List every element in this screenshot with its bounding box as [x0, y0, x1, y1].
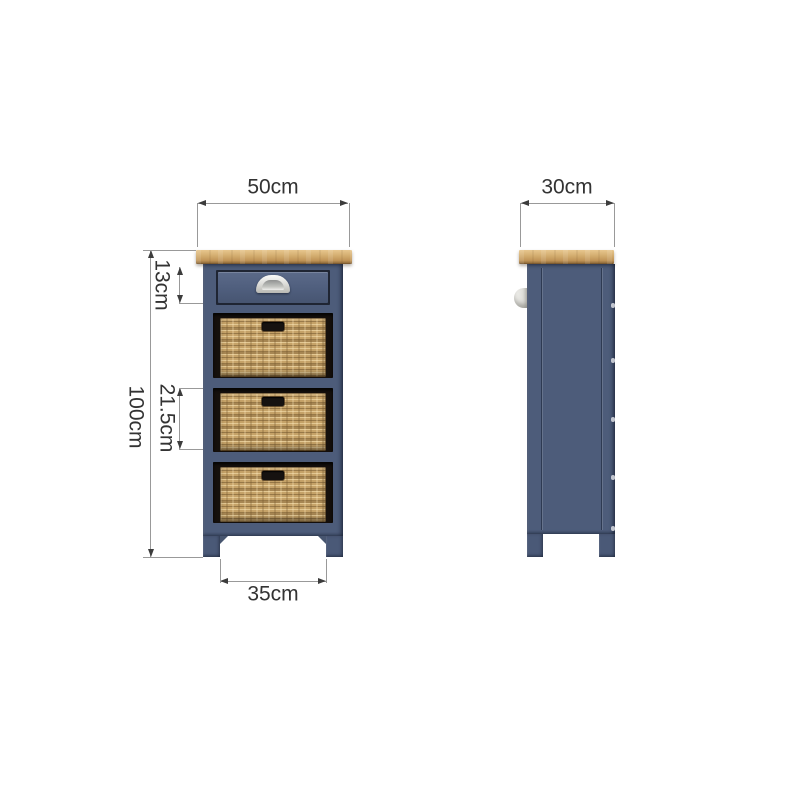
side-edge-highlight: [611, 526, 615, 531]
dimension-leg-span-label: 35cm: [247, 584, 298, 605]
basket-handle-cutout-1: [262, 322, 284, 331]
side-edge-highlight: [611, 358, 615, 363]
dimension-total-height-label: 100cm: [126, 385, 147, 448]
arrowhead-left: [198, 200, 206, 206]
side-panel-groove-front-highlight: [542, 268, 543, 530]
drawer-cup-handle-inner: [262, 280, 284, 290]
front-oak-top: [196, 250, 352, 264]
side-edge-highlight: [611, 475, 615, 480]
front-leg-left: [203, 536, 220, 557]
arrowhead-down: [177, 295, 183, 303]
arrowhead-up: [148, 250, 154, 258]
arrowhead-right: [340, 200, 348, 206]
dimension-line: [179, 388, 180, 449]
arrowhead-up: [177, 267, 183, 275]
arrowhead-right: [318, 578, 326, 584]
dimension-basket-height-label: 21.5cm: [157, 384, 178, 453]
front-drawer-recess: [216, 270, 330, 305]
side-oak-grain: [519, 250, 614, 264]
front-leg-right: [326, 536, 343, 557]
dimension-front-width-label: 50cm: [247, 177, 298, 198]
arrowhead-down: [148, 549, 154, 557]
basket-handle-cutout-2: [262, 397, 284, 406]
dimension-line: [521, 203, 614, 204]
extension-line: [520, 203, 521, 247]
basket-handle-cutout-3: [262, 471, 284, 480]
side-edge-highlight: [611, 303, 615, 308]
extension-line: [197, 203, 198, 247]
arrowhead-up: [177, 388, 183, 396]
front-oak-grain: [196, 250, 352, 264]
arrowhead-left: [521, 200, 529, 206]
dimension-line: [198, 203, 348, 204]
diagram-canvas: 50cm 30cm 100cm 13cm 21.5cm: [0, 0, 800, 800]
side-leg-back: [599, 534, 615, 557]
dimension-drawer-height-label: 13cm: [152, 259, 173, 310]
side-drawer-handle: [514, 288, 527, 308]
side-leg-front: [527, 534, 543, 557]
front-apron-chamfer-right: [318, 536, 326, 544]
extension-line: [179, 388, 203, 389]
front-apron-chamfer-left: [220, 536, 228, 544]
basket-opening-1: [213, 313, 333, 378]
side-edge-highlight: [611, 417, 615, 422]
extension-line: [614, 203, 615, 247]
extension-line: [179, 449, 203, 450]
wicker-basket-3: [220, 467, 326, 522]
side-panel-groove-back-highlight: [602, 268, 603, 530]
extension-line: [220, 559, 221, 583]
extension-line: [143, 250, 196, 251]
arrowhead-left: [220, 578, 228, 584]
extension-line: [326, 559, 327, 583]
wicker-basket-1: [220, 318, 326, 377]
dimension-line: [220, 581, 326, 582]
basket-opening-2: [213, 388, 333, 452]
basket-opening-3: [213, 462, 333, 523]
wicker-basket-2: [220, 393, 326, 451]
arrowhead-down: [177, 441, 183, 449]
extension-line: [143, 557, 203, 558]
dimension-side-depth-label: 30cm: [541, 177, 592, 198]
extension-line: [349, 203, 350, 247]
extension-line: [179, 303, 203, 304]
side-oak-top: [519, 250, 614, 264]
arrowhead-right: [606, 200, 614, 206]
